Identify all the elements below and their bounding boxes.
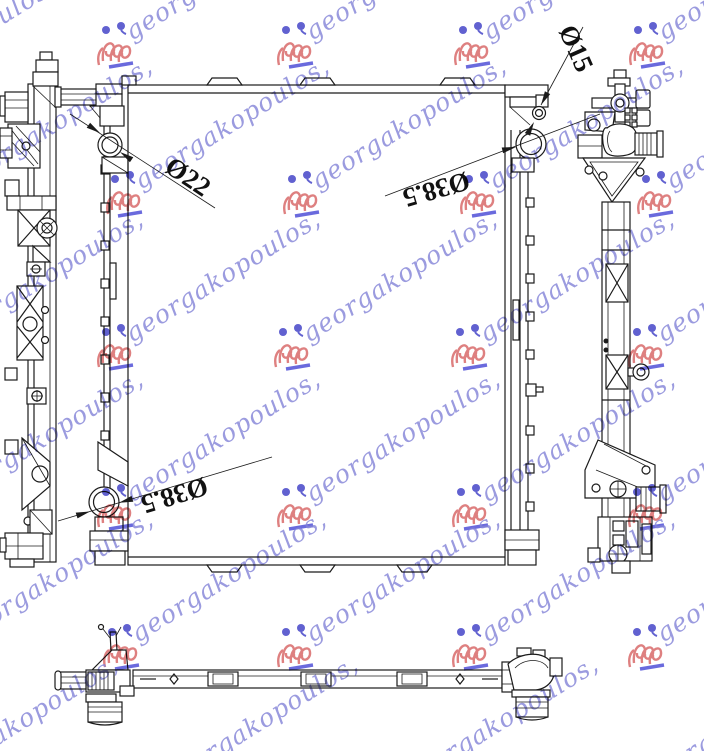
technical-drawing: Ø22 Ø38.5 Ø15 Ø38.5 xyxy=(0,0,704,751)
side-view-left xyxy=(0,52,58,567)
dimension-label-38-5-bottom: Ø38.5 xyxy=(138,471,212,520)
dimension-label-38-5-top: Ø38.5 xyxy=(400,166,474,214)
catalog-part-image: Ø22 Ø38.5 Ø15 Ø38.5 georgakopoulos,georg… xyxy=(0,0,704,751)
dimension-label-15: Ø15 xyxy=(553,20,600,76)
dimension-label-22: Ø22 xyxy=(160,151,217,203)
bottom-view xyxy=(55,625,562,726)
side-view-right xyxy=(578,70,666,573)
right-tank-channel xyxy=(505,85,548,565)
port-circle-15 xyxy=(533,107,546,120)
